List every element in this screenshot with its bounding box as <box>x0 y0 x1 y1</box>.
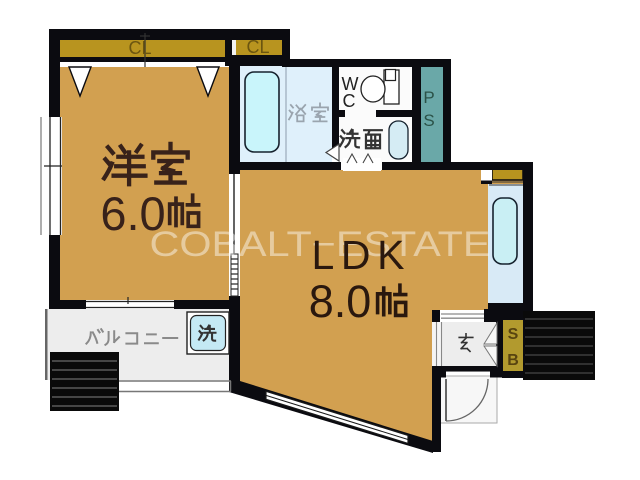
svg-text:B: B <box>507 352 519 369</box>
svg-text:CL: CL <box>128 38 151 58</box>
svg-text:6.0: 6.0 <box>100 187 165 240</box>
svg-text:S: S <box>423 111 434 130</box>
svg-text:S: S <box>508 326 519 343</box>
svg-text:CL: CL <box>246 37 269 57</box>
svg-text:C: C <box>343 91 356 111</box>
svg-text:8.0: 8.0 <box>309 276 372 327</box>
svg-text:P: P <box>423 88 434 107</box>
svg-text:LDK: LDK <box>312 232 405 278</box>
